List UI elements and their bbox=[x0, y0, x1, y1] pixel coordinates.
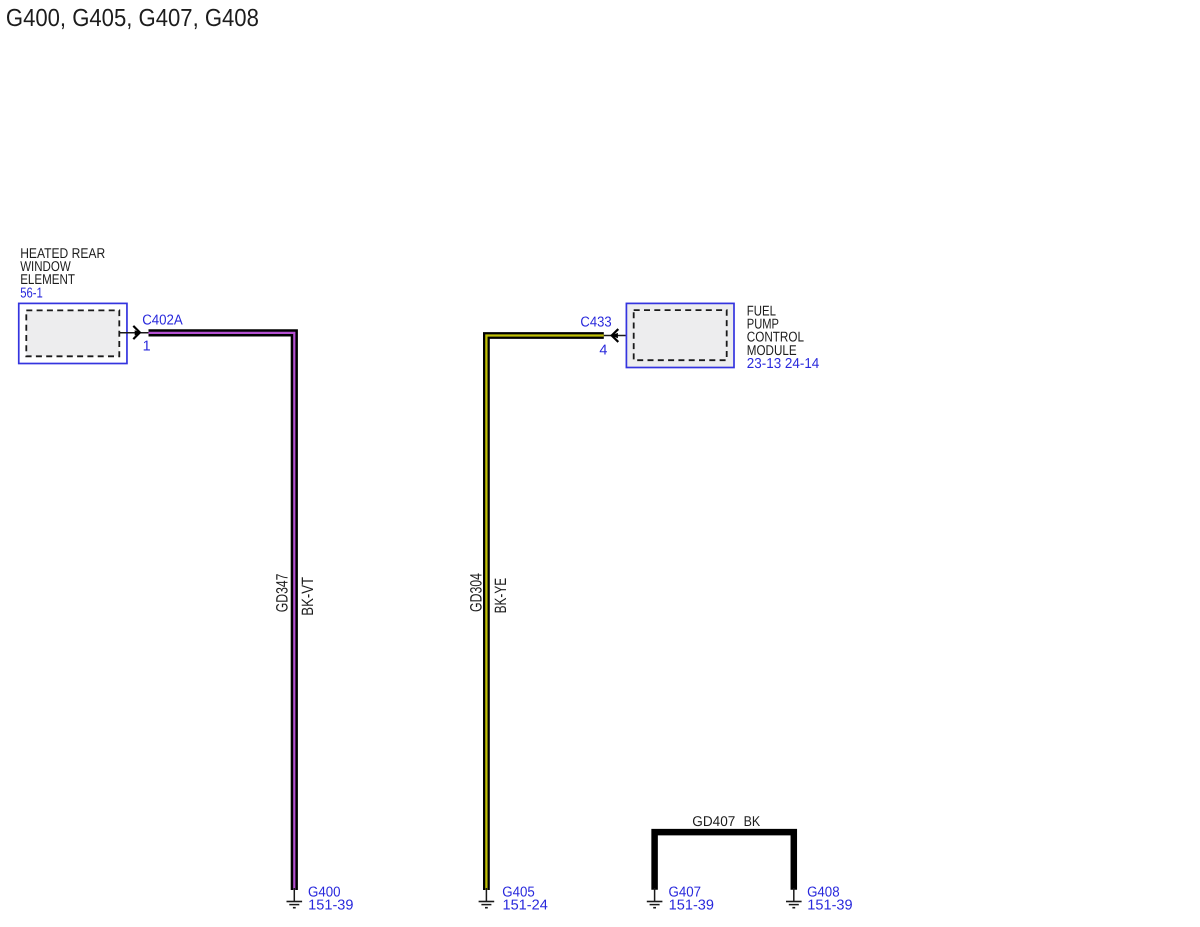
svg-text:56-1: 56-1 bbox=[20, 285, 43, 301]
svg-text:151-39: 151-39 bbox=[669, 898, 714, 914]
svg-text:C402A: C402A bbox=[142, 313, 183, 329]
svg-text:23-13 24-14: 23-13 24-14 bbox=[747, 356, 820, 372]
svg-text:BK-YE: BK-YE bbox=[492, 578, 510, 614]
svg-text:4: 4 bbox=[599, 342, 607, 358]
svg-text:151-24: 151-24 bbox=[503, 898, 548, 914]
svg-text:C433: C433 bbox=[580, 314, 611, 330]
svg-text:GD407: GD407 bbox=[692, 814, 735, 830]
svg-text:BK-VT: BK-VT bbox=[299, 577, 317, 616]
svg-text:151-39: 151-39 bbox=[807, 898, 852, 914]
svg-text:G400, G405, G407, G408: G400, G405, G407, G408 bbox=[6, 5, 259, 32]
svg-text:GD347: GD347 bbox=[274, 574, 292, 613]
svg-text:1: 1 bbox=[143, 338, 151, 354]
svg-text:BK: BK bbox=[744, 814, 761, 830]
svg-text:151-39: 151-39 bbox=[308, 898, 353, 914]
svg-text:GD304: GD304 bbox=[467, 573, 485, 612]
